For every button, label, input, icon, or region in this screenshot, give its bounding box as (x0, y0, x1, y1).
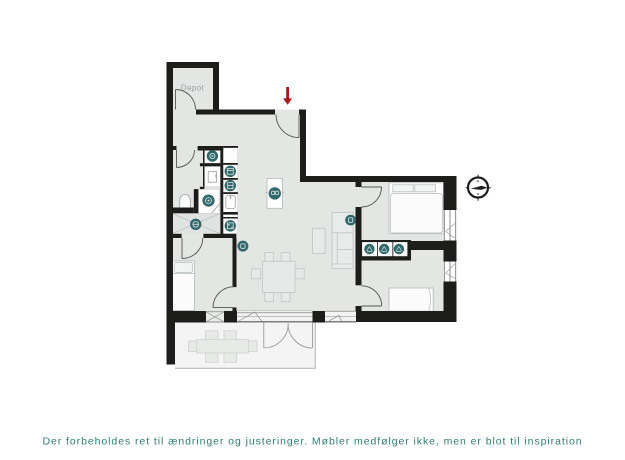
svg-text:Der forbeholdes ret til ændrin: Der forbeholdes ret til ændringer og jus… (42, 436, 582, 448)
svg-text:Depot: Depot (181, 84, 205, 93)
